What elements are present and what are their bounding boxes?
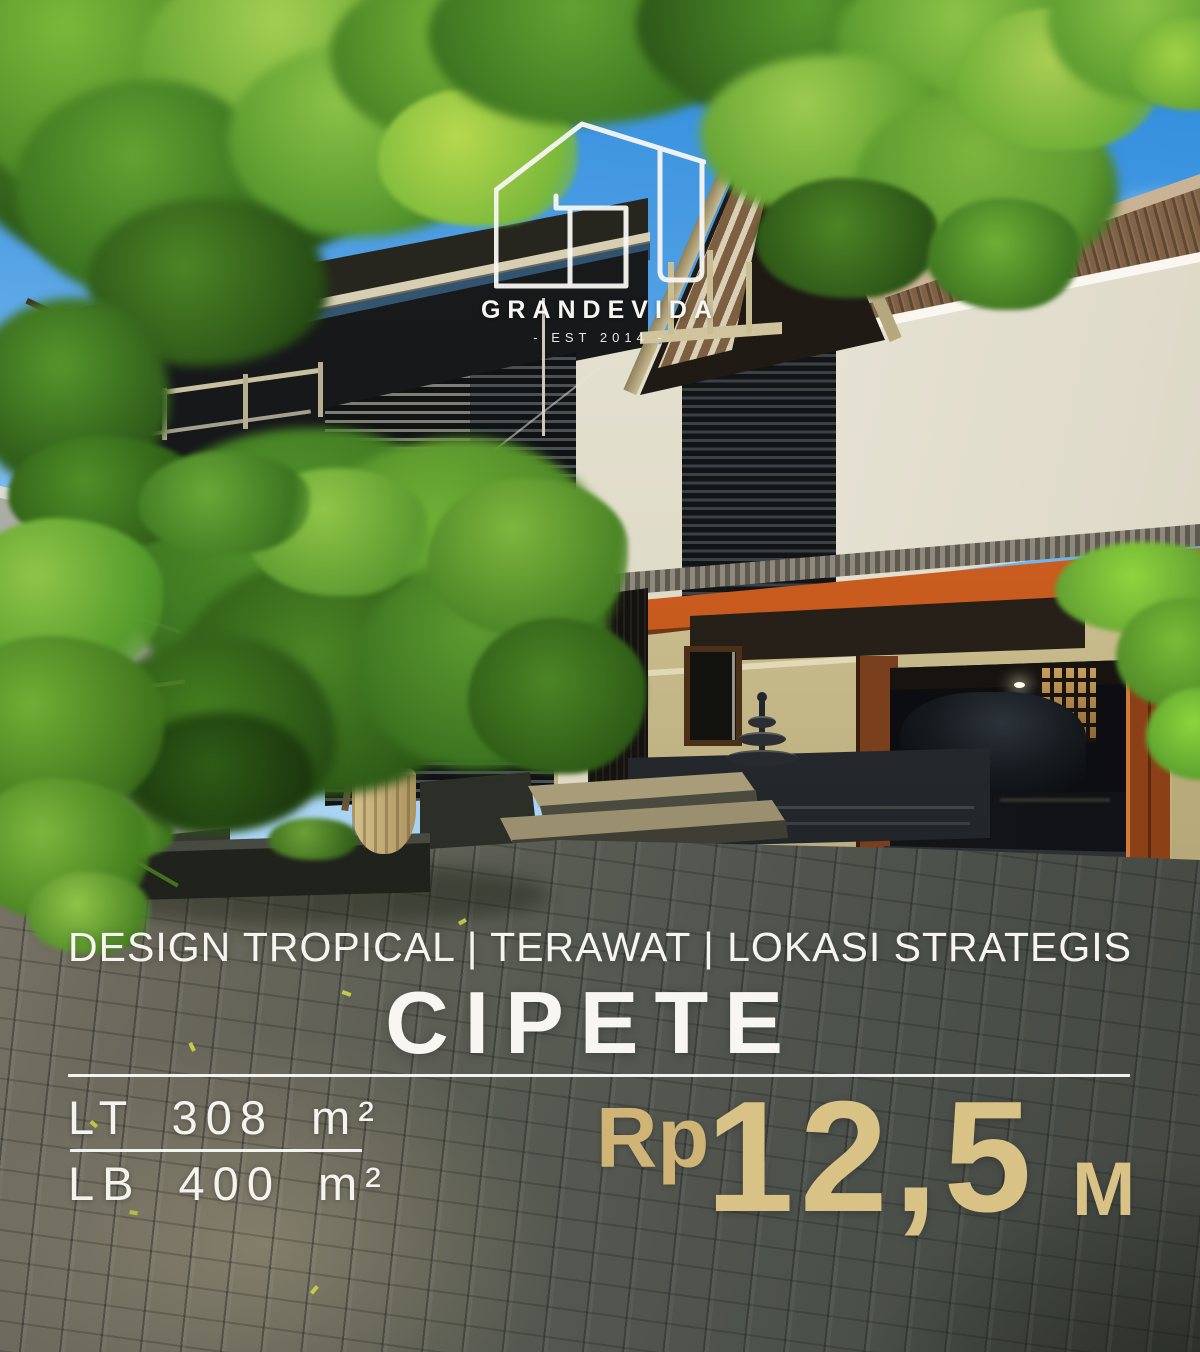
balcony-post [243,374,248,429]
fountain-finial [757,692,767,702]
wall-top-plants [138,452,310,554]
fountain-bowl [726,750,798,766]
balcony-post [318,362,323,417]
garage-lamp [1014,682,1025,688]
price-amount: 12,5 [706,1078,1038,1236]
fountain-bowl [748,716,776,728]
house-outline-icon [494,110,706,290]
price-currency: Rp [596,1096,709,1181]
land-area: LT 308 m² [68,1092,389,1144]
building-area: LB 400 m² [68,1158,389,1210]
logo-house-path [496,124,704,286]
planter-grass [268,818,358,860]
fountain-bowl [738,732,786,746]
specs-divider [70,1149,362,1152]
location-title: CIPETE [0,972,1192,1074]
window-glint [732,652,735,740]
brand-established: - EST 2014 - [0,330,1200,345]
brand-name: GRANDEVIDA [0,296,1200,325]
fountain-stem [759,700,765,756]
specs-block: LT 308 m² LB 400 m² [68,1092,389,1210]
leaf-cluster [428,478,628,636]
tagline: DESIGN TROPICAL | TERAWAT | LOKASI STRAT… [0,924,1200,971]
price-unit: M [1072,1152,1135,1228]
leaf-cluster [468,618,646,774]
floor-reflection [1000,798,1110,802]
property-listing-poster: GRANDEVIDA - EST 2014 - DESIGN TROPICAL … [0,0,1200,1352]
brand-logo: GRANDEVIDA - EST 2014 - [0,0,1200,360]
logo-annex-path [660,150,702,280]
